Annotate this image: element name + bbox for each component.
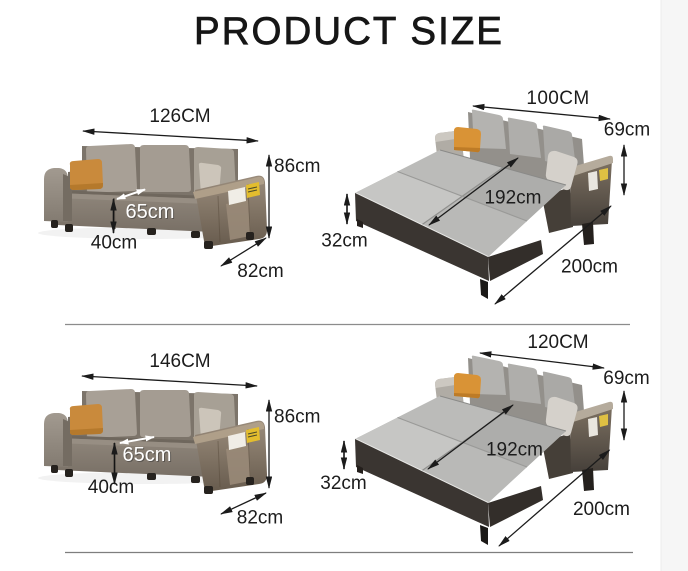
svg-text:192cm: 192cm	[486, 440, 543, 461]
svg-text:40cm: 40cm	[91, 233, 137, 254]
svg-text:69cm: 69cm	[603, 368, 649, 389]
svg-text:82cm: 82cm	[237, 508, 283, 529]
svg-text:192cm: 192cm	[484, 188, 541, 209]
svg-text:40cm: 40cm	[88, 477, 134, 498]
svg-text:86cm: 86cm	[274, 156, 320, 177]
svg-text:126CM: 126CM	[149, 106, 210, 127]
svg-text:32cm: 32cm	[320, 473, 366, 494]
svg-text:200cm: 200cm	[561, 257, 618, 278]
svg-text:200cm: 200cm	[573, 499, 630, 520]
svg-text:100CM: 100CM	[526, 88, 589, 109]
svg-text:65cm: 65cm	[126, 201, 175, 223]
svg-text:120CM: 120CM	[527, 332, 588, 353]
svg-text:PRODUCT SIZE: PRODUCT SIZE	[194, 10, 504, 53]
svg-text:69cm: 69cm	[604, 120, 650, 141]
svg-text:146CM: 146CM	[149, 351, 210, 372]
svg-text:86cm: 86cm	[274, 407, 320, 428]
svg-text:82cm: 82cm	[237, 261, 283, 282]
svg-text:65cm: 65cm	[123, 444, 172, 466]
svg-text:32cm: 32cm	[321, 231, 367, 252]
